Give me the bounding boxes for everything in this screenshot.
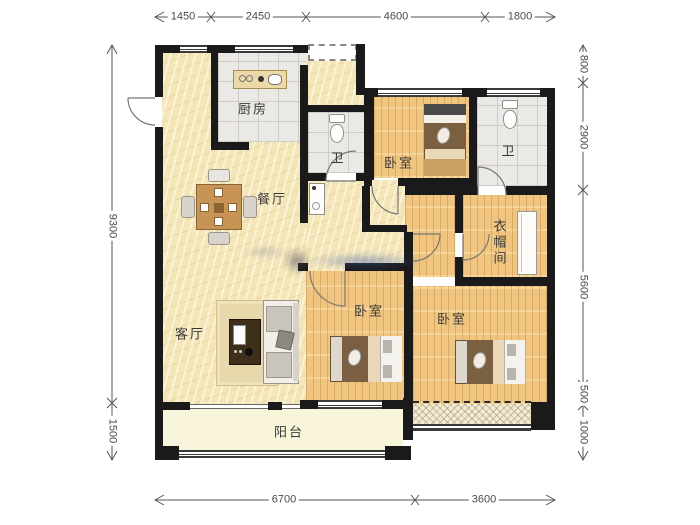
dim-top-2450: 2450 [243, 11, 273, 24]
label-dining: 餐厅 [257, 189, 287, 208]
dim-top-4600: 4600 [381, 11, 411, 24]
dim-bottom-3600: 3600 [469, 494, 499, 507]
floor-plan: 1450 2450 4600 1800 6700 3600 9300 1500 … [0, 0, 700, 525]
label-bath-right: 卫 [501, 141, 516, 160]
dim-top-1450: 1450 [168, 11, 198, 24]
plan-linework [0, 0, 700, 525]
dim-right-800: 800 [577, 52, 590, 76]
dim-right-2900: 2900 [577, 122, 590, 152]
label-kitchen: 厨房 [238, 99, 268, 118]
label-cloakroom: 衣帽间 [490, 219, 509, 267]
label-bedroom-mid: 卧室 [354, 301, 384, 320]
dim-right-500: 500 [577, 382, 590, 406]
dim-top-1800: 1800 [505, 11, 535, 24]
dim-right-1000: 1000 [577, 417, 590, 447]
label-bedroom-right: 卧室 [437, 309, 467, 328]
dim-right-5600: 5600 [577, 272, 590, 302]
dim-left-9300: 9300 [106, 211, 119, 241]
label-balcony: 阳台 [274, 422, 304, 441]
dim-bottom-6700: 6700 [269, 494, 299, 507]
label-living: 客厅 [175, 324, 205, 343]
label-bath-top: 卫 [330, 148, 345, 167]
dim-left-1500: 1500 [106, 416, 119, 446]
label-bedroom-top: 卧室 [384, 153, 414, 172]
